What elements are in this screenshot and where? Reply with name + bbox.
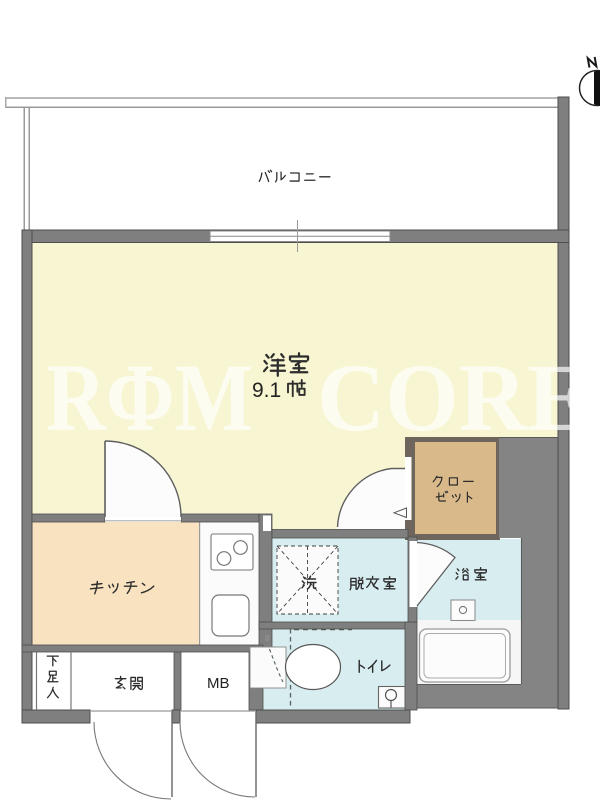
svg-text:MB: MB bbox=[207, 675, 230, 692]
svg-text:9.1: 9.1 bbox=[252, 379, 281, 402]
svg-text:CORE: CORE bbox=[317, 344, 590, 451]
svg-text:RΦM: RΦM bbox=[46, 344, 253, 451]
